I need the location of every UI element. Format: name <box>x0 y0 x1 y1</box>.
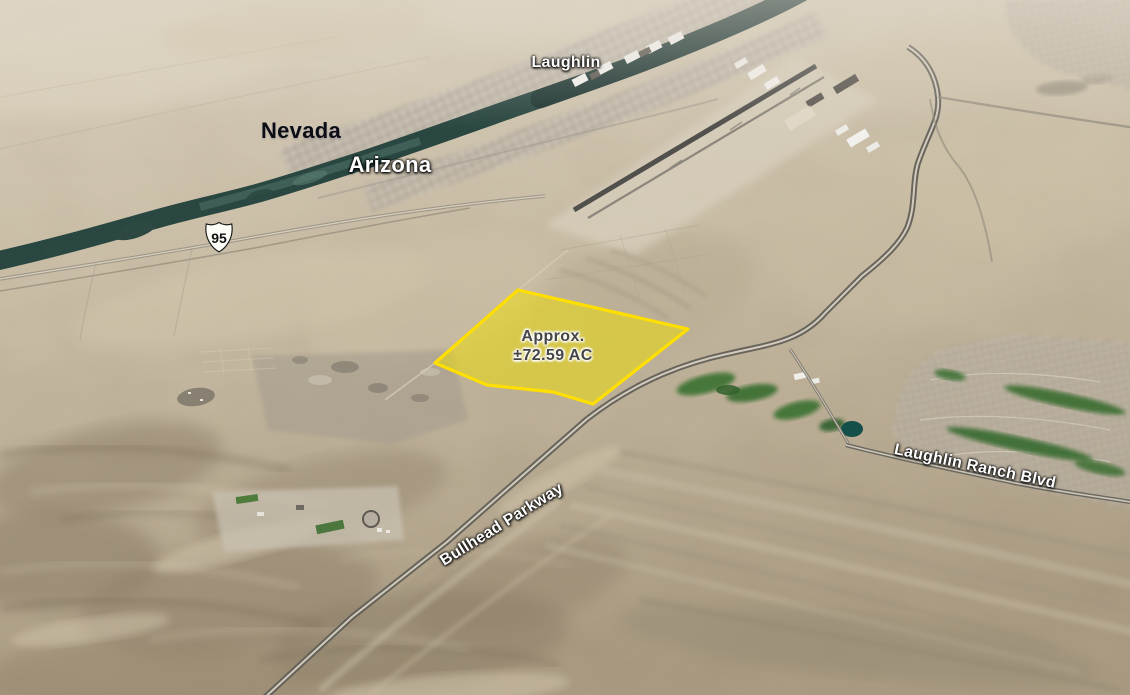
parcel-acreage-line2: ±72.59 AC <box>513 346 592 365</box>
parcel-acreage-label: Approx. ±72.59 AC <box>513 327 592 365</box>
label-laughlin: Laughlin <box>531 54 600 72</box>
aerial-photo: Laughlin Nevada Arizona 95 Approx. ±72.5… <box>0 0 1130 695</box>
us-95-shield: 95 <box>204 221 234 253</box>
parcel-acreage-line1: Approx. <box>513 327 592 346</box>
route-number: 95 <box>204 221 234 253</box>
label-arizona: Arizona <box>349 152 432 178</box>
label-nevada: Nevada <box>261 118 341 144</box>
